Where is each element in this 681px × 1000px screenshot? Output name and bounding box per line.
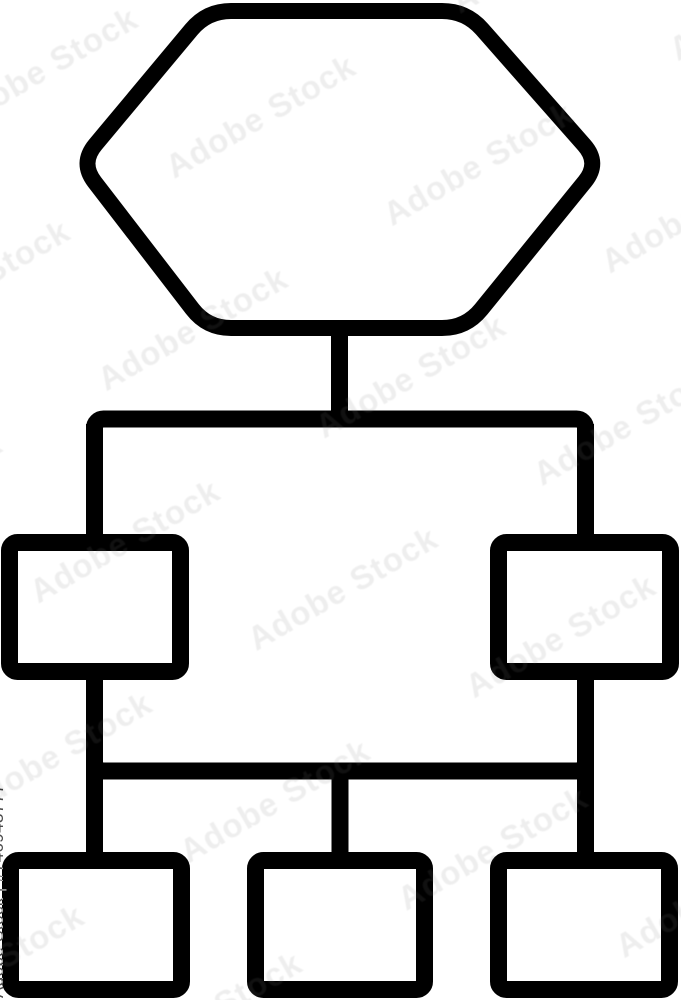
bottom-center-node (256, 861, 425, 990)
bottom-right-node (499, 861, 670, 990)
right-node (499, 543, 671, 672)
left-node (10, 543, 181, 672)
stock-image-canvas: Adobe StockAdobe StockAdobe StockAdobe S… (0, 0, 681, 1000)
bottom-left-node (11, 861, 182, 990)
sitemap-flowchart-icon (0, 0, 681, 1000)
hexagon-root-node (87, 11, 592, 328)
